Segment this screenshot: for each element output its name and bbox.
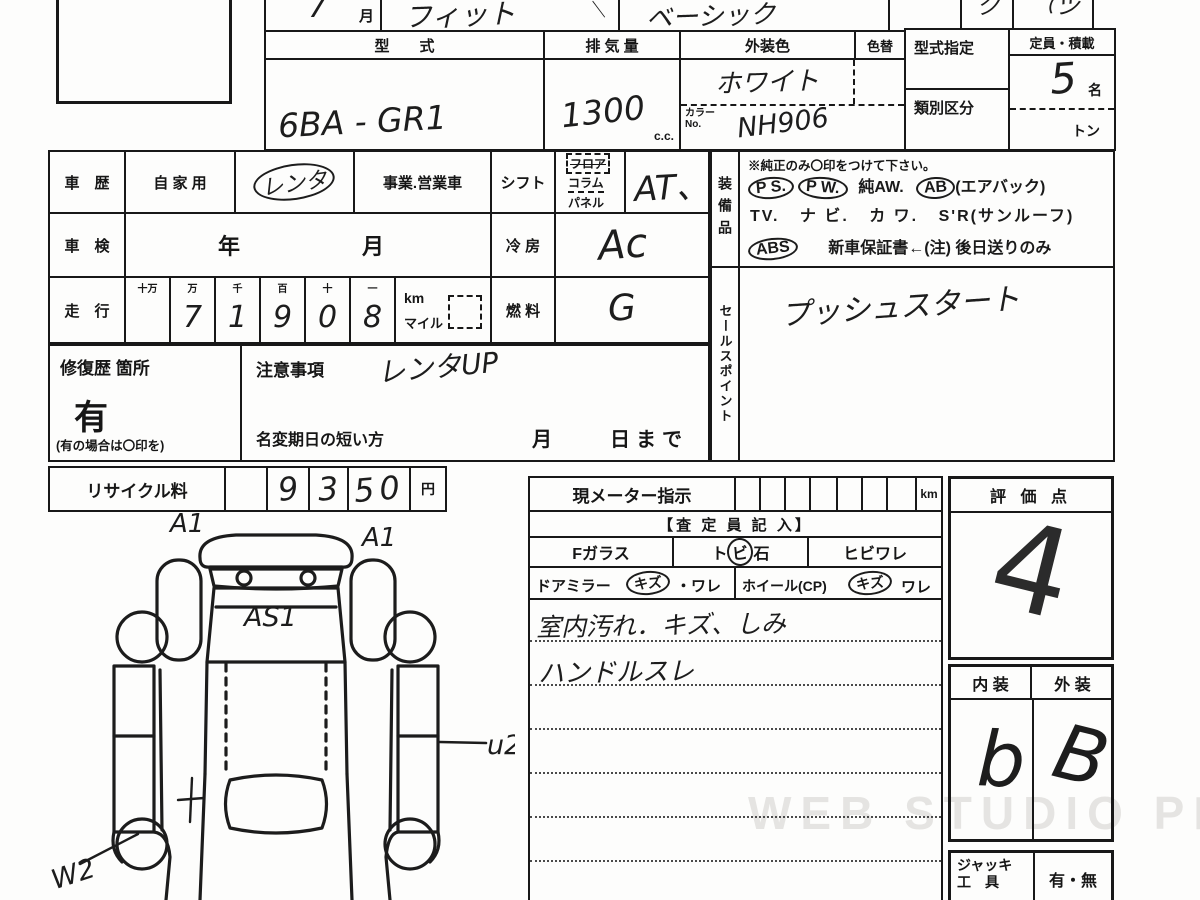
- equipment-abs: ABS: [747, 235, 799, 262]
- sill-line-left: [160, 670, 162, 830]
- capacity-divider: [1010, 108, 1114, 110]
- month-handwritten: 7: [308, 0, 327, 25]
- digit-value: 0: [306, 300, 349, 335]
- meter-unit: km: [915, 476, 943, 512]
- exterior-color-value: ホワイト: [714, 60, 819, 101]
- shift-value: AT、: [633, 158, 711, 211]
- fuel-value: G: [607, 287, 637, 329]
- recycle-fee-label: リサイクル料: [48, 466, 226, 512]
- wheel-crack: ワレ: [901, 576, 931, 597]
- front-wheel-right: [385, 612, 435, 662]
- stone-chip-post: 石: [754, 540, 770, 564]
- name-change-suffix: 月 日まで: [532, 423, 688, 452]
- color-change-header: 色替: [854, 30, 906, 60]
- recycle-digit-1: 9: [276, 469, 300, 509]
- shift-option-column: コラム: [568, 174, 604, 193]
- recycle-cell-1: 9: [266, 466, 310, 512]
- unit-checkbox: [448, 295, 482, 329]
- capacity-unit: 名: [1088, 80, 1102, 100]
- capacity-cell: 5 名 トン: [1008, 54, 1116, 151]
- score-value: 4: [977, 492, 1087, 649]
- caution-handwritten: レンタUP: [375, 341, 499, 391]
- mark-a1-right: A1: [360, 523, 396, 553]
- corner-mark-cell-1: ク: [960, 0, 1014, 30]
- pen-tick-horizontal: [178, 798, 204, 800]
- model-code-header: 型 式: [264, 30, 545, 60]
- type-designation-cell: 型式指定: [904, 28, 1010, 90]
- sales-point-label: セールスポイント: [716, 304, 735, 424]
- digit-header: 万: [171, 280, 214, 295]
- door-mirror-label: ドアミラー: [536, 575, 611, 596]
- wheel-label: ホイール(CP): [742, 576, 827, 596]
- equipment-navi: ナ ビ.: [800, 208, 849, 225]
- meter-cell-2: [759, 476, 786, 512]
- exterior-color-header: 外装色: [679, 30, 856, 60]
- corner-mark-cell-2: （ヅ: [1012, 0, 1094, 30]
- note-ruling: [530, 860, 941, 862]
- equipment-note: ※純正のみ〇印をつけて下さい。: [748, 155, 936, 174]
- history-handwritten-cell: レンタ: [234, 150, 355, 214]
- equipment-sunroof: S'R(サンルーフ): [939, 208, 1075, 225]
- mileage-digit-10: 十 0: [304, 276, 351, 344]
- type-designation-label: 型式指定: [914, 37, 974, 58]
- washer-left: [237, 571, 251, 585]
- cabin-side-left: [205, 662, 207, 774]
- meter-cell-1: [734, 476, 761, 512]
- exterior-header: 外 装: [1032, 667, 1113, 700]
- mark-w2: W2: [50, 853, 99, 896]
- front-fender-right: [351, 560, 395, 660]
- displacement-unit: c.c.: [654, 129, 674, 143]
- shift-option-panel: パネル: [568, 194, 604, 211]
- wheel-scratch-circled: キズ: [847, 569, 893, 597]
- rear-deck-left: [200, 774, 205, 900]
- fuel-value-cell: G: [554, 276, 710, 344]
- color-change-divider: [853, 60, 855, 104]
- model-code-cell: 6BA - GR1: [264, 58, 545, 151]
- score-box: 評 価 点 4: [948, 476, 1114, 660]
- note-ruling: [530, 640, 941, 642]
- mark-u2: u2: [487, 730, 515, 761]
- mileage-digit-1: 一 8: [349, 276, 396, 344]
- digit-value: 8: [351, 300, 394, 335]
- equipment-warranty: 新車保証書←(注) 後日送りのみ: [828, 240, 1051, 257]
- displacement-value: 1300: [559, 88, 647, 136]
- rear-deck-right: [347, 774, 352, 900]
- shift-options-cell: フロア コラム パネル: [554, 150, 626, 214]
- front-bumper: [200, 535, 352, 567]
- note-ruling: [530, 772, 941, 774]
- recycle-cell-3: 50: [347, 466, 411, 512]
- note-ruling: [530, 684, 941, 686]
- displacement-header: 排 気 量: [543, 30, 681, 60]
- equipment-aw: 純AW.: [858, 179, 903, 196]
- digit-value: 1: [216, 300, 259, 335]
- exterior-color-cell: ホワイト カラーNo. NH906: [679, 58, 906, 151]
- u2-pointer-line: [440, 742, 486, 743]
- meter-cell-3: [784, 476, 811, 512]
- cooling-value-cell: Ac: [554, 212, 710, 278]
- mark-as1: AS1: [242, 602, 297, 633]
- mileage-digit-1k: 千 1: [214, 276, 261, 344]
- lot-number: 7001: [87, 0, 256, 2]
- interior-value: b: [975, 714, 1026, 805]
- sales-point-body: プッシュスタート: [738, 266, 1115, 462]
- digit-header: 千: [216, 280, 259, 295]
- equipment-leather: カ ワ.: [869, 208, 918, 225]
- equipment-ab-note: (エアバック): [955, 179, 1045, 196]
- month-label: 月: [359, 5, 374, 26]
- business-use-label: 事業.営業車: [353, 150, 492, 214]
- door-mirror-crack: ・ワレ: [676, 575, 721, 596]
- grade-cell: ベーシック: [618, 0, 890, 32]
- km-unit-label: km: [404, 290, 424, 306]
- digit-header: 十万: [126, 280, 169, 295]
- door-mirror-cell: ドアミラー キズ ・ワレ: [528, 566, 736, 600]
- recycle-unit: 円: [409, 466, 447, 512]
- meter-cell-4: [809, 476, 838, 512]
- recycle-digit-3: 50: [352, 468, 406, 510]
- mile-unit-label: マイル: [404, 313, 443, 332]
- sales-point-label-cell: セールスポイント: [710, 266, 740, 462]
- cooling-value: Ac: [596, 220, 648, 269]
- meter-cell-5: [836, 476, 863, 512]
- equipment-line-2: TV. ナ ビ. カ ワ. S'R(サンルーフ): [750, 202, 1074, 226]
- meter-cell-7: [886, 476, 917, 512]
- capacity-value: 5: [1048, 53, 1078, 104]
- sales-point-handwritten: プッシュスタート: [779, 274, 1021, 335]
- recycle-digit-2: 3: [317, 469, 340, 508]
- shift-option-floor: フロア: [566, 153, 610, 174]
- equipment-body: ※純正のみ〇印をつけて下さい。 P S. P W. 純AW. AB(エアバック)…: [738, 150, 1115, 268]
- caution-cell: 注意事項 レンタUP 名変期日の短い方 月 日まで: [240, 344, 710, 462]
- equipment-ps: P S.: [747, 175, 795, 201]
- assessor-note-1: 室内汚れ．キズ、しみ: [536, 604, 787, 644]
- month-cell: 7 月: [264, 0, 382, 32]
- auction-sheet: WEB STUDIO PRO 7001 7 月 フィット ＼ ベーシック ク （…: [0, 0, 1200, 900]
- equipment-line-3: ABS 新車保証書←(注) 後日送りのみ: [748, 234, 1051, 260]
- meter-label: 現メーター指示: [528, 476, 736, 512]
- recycle-cell-blank: [224, 466, 268, 512]
- assessor-notes-area: 室内汚れ．キズ、しみ ハンドルスレ: [528, 598, 943, 900]
- equipment-line-1: P S. P W. 純AW. AB(エアバック): [748, 173, 1045, 199]
- note-ruling: [530, 728, 941, 730]
- car-damage-diagram: A1 A1 AS1 u2 W2: [50, 512, 515, 900]
- mileage-label: 走 行: [48, 276, 126, 344]
- repair-history-note: (有の場合は〇印を): [56, 435, 164, 454]
- washer-right: [301, 571, 315, 585]
- cabin-side-right: [345, 662, 347, 774]
- equipment-pw: P W.: [798, 175, 849, 200]
- front-fender-left: [157, 560, 201, 660]
- jack-tools-box: ジャッキ工 具 有・無: [948, 850, 1114, 900]
- door-mirror-scratch-circled: キズ: [625, 569, 671, 597]
- repair-history-value: 有: [74, 390, 108, 439]
- interior-header: 内 装: [951, 667, 1032, 700]
- shift-label: シフト: [490, 150, 556, 214]
- recycle-cell-2: 3: [308, 466, 349, 512]
- repair-history-cell: 修復歴 箇所 有 (有の場合は〇印を): [48, 344, 242, 462]
- private-use-label: 自 家 用: [124, 150, 236, 214]
- model-code-value: 6BA - GR1: [277, 98, 447, 146]
- stone-chip-circled: ビ: [726, 537, 754, 567]
- interior-exterior-divider: [1032, 700, 1034, 839]
- car-name-cell: フィット ＼: [380, 0, 620, 32]
- capacity-header: 定員・積載: [1008, 28, 1116, 56]
- mark-a1-left: A1: [168, 512, 204, 539]
- rear-wheel-right: [385, 819, 435, 869]
- displacement-cell: 1300 c.c.: [543, 58, 681, 151]
- ton-label: トン: [1072, 121, 1100, 141]
- equipment-label: 装備品: [715, 176, 735, 242]
- digit-value: 9: [261, 300, 304, 335]
- caution-label: 注意事項: [256, 356, 324, 381]
- equipment-label-cell: 装備品: [710, 150, 740, 268]
- meter-cell-6: [861, 476, 888, 512]
- rear-window: [226, 775, 327, 833]
- hood-edge: [210, 569, 342, 589]
- stray-pen-tick: ＼: [588, 0, 606, 22]
- fuel-label: 燃 料: [490, 276, 556, 344]
- jack-tools-value: 有・無: [1049, 867, 1097, 891]
- color-no-subcell: カラーNo. NH906: [681, 104, 904, 149]
- mileage-unit-cell: km マイル: [394, 276, 492, 344]
- mileage-digit-10k: 万 7: [169, 276, 216, 344]
- class-division-label: 類別区分: [914, 97, 974, 118]
- history-rental-mark: レンタ: [251, 158, 337, 205]
- inspection-value: 年 月: [124, 212, 492, 278]
- rear-wheel-left: [117, 819, 167, 869]
- door-panel-left: [114, 666, 154, 832]
- sill-line-right: [390, 670, 392, 830]
- inspection-label: 車 検: [48, 212, 126, 278]
- exterior-value: B: [1045, 706, 1117, 805]
- digit-header: 十: [306, 280, 349, 295]
- shift-value-cell: AT、: [624, 150, 710, 214]
- front-glass-label: Fガラス: [528, 536, 674, 568]
- cooling-label: 冷 房: [490, 212, 556, 278]
- digit-value: 7: [171, 300, 214, 335]
- assessor-header: 【査 定 員 記 入】: [528, 510, 943, 538]
- corner-mark-2: （ヅ: [1029, 0, 1082, 23]
- crack-label: ヒビワレ: [807, 536, 943, 568]
- interior-exterior-box: 内 装 外 装 b B: [948, 664, 1114, 842]
- history-label: 車 歴: [48, 150, 126, 214]
- color-no-value: NH906: [735, 103, 830, 145]
- digit-header: 百: [261, 280, 304, 295]
- note-ruling: [530, 816, 941, 818]
- equipment-tv: TV.: [750, 208, 779, 225]
- mileage-digit-100: 百 9: [259, 276, 306, 344]
- stone-chip-pre: ト: [711, 540, 727, 564]
- wheel-cell: ホイール(CP) キズ ワレ: [734, 566, 943, 600]
- corner-mark-1: ク: [976, 0, 1000, 21]
- jack-tools-label: ジャッキ工 具: [951, 853, 1035, 900]
- class-division-cell: 類別区分: [904, 88, 1010, 151]
- repair-history-label: 修復歴 箇所: [60, 354, 150, 379]
- mileage-digit-100k: 十万: [124, 276, 171, 344]
- door-panel-right: [398, 666, 438, 832]
- equipment-ab: AB: [916, 176, 956, 200]
- digit-header: 一: [351, 280, 394, 295]
- name-change-label: 名変期日の短い方: [256, 426, 384, 450]
- lot-number-box: 7001: [56, 0, 232, 104]
- front-wheel-left: [117, 612, 167, 662]
- stone-chip-cell: トビ石: [672, 536, 809, 568]
- color-no-label: カラーNo.: [685, 109, 715, 130]
